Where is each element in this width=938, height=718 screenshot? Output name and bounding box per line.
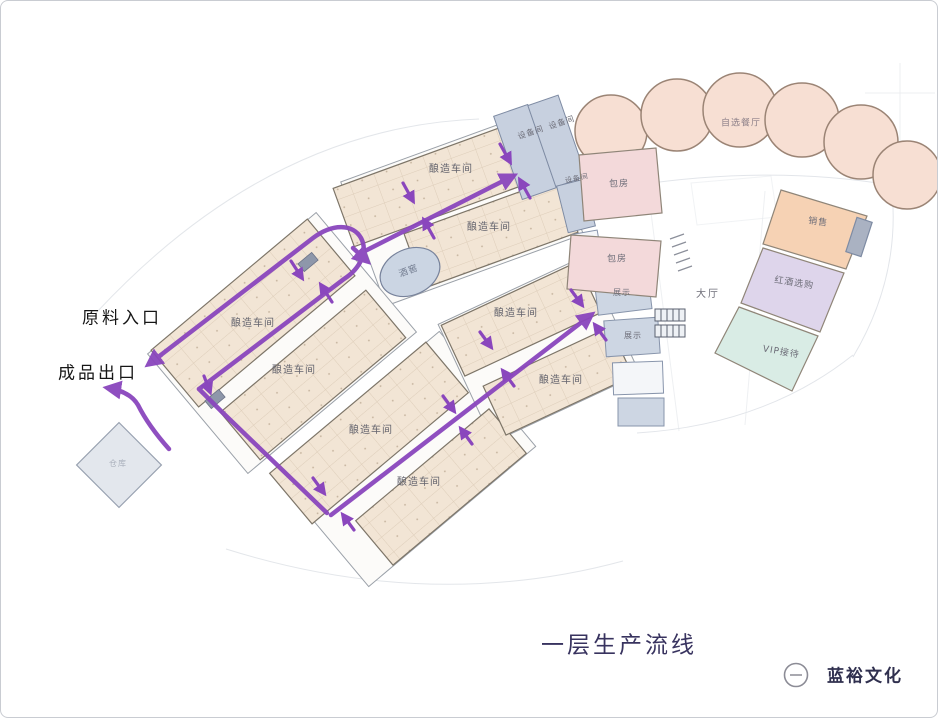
- entrance-label: 原料入口: [82, 311, 162, 328]
- private-room-label: 包房: [607, 256, 627, 265]
- workshop-label: 酿造车间: [494, 309, 538, 319]
- workshop-label: 酿造车间: [272, 366, 316, 376]
- service-room: [612, 361, 663, 395]
- workshop-label: 酿造车间: [349, 426, 393, 436]
- escalator-icon: [670, 234, 692, 271]
- display-label: 展示: [624, 332, 642, 340]
- display-label: 展示: [613, 289, 631, 297]
- exit-label: 成品出口: [58, 366, 138, 383]
- warehouse-label: 仓库: [109, 460, 127, 468]
- workshop-label: 酿造车间: [539, 376, 583, 386]
- logo-text: 蓝裕文化: [827, 669, 903, 686]
- restaurant-label: 自选餐厅: [721, 120, 761, 129]
- workshop-label: 酿造车间: [429, 165, 473, 175]
- workshop-label: 酿造车间: [467, 223, 511, 233]
- logo-icon: [785, 664, 808, 687]
- workshop-label: 酿造车间: [231, 319, 275, 329]
- hall-label: 大厅: [696, 290, 720, 300]
- page-title: 一层生产流线: [541, 635, 697, 658]
- workshop-label: 酿造车间: [397, 478, 441, 488]
- service-room: [618, 398, 664, 426]
- floorplan-page: 原料入口 成品出口 酿造车间 酿造车间 酿造车间 酿造车间 酿造车间 酿造车间 …: [0, 0, 938, 718]
- private-room-label: 包房: [609, 181, 629, 190]
- stairs-icon: [655, 309, 685, 337]
